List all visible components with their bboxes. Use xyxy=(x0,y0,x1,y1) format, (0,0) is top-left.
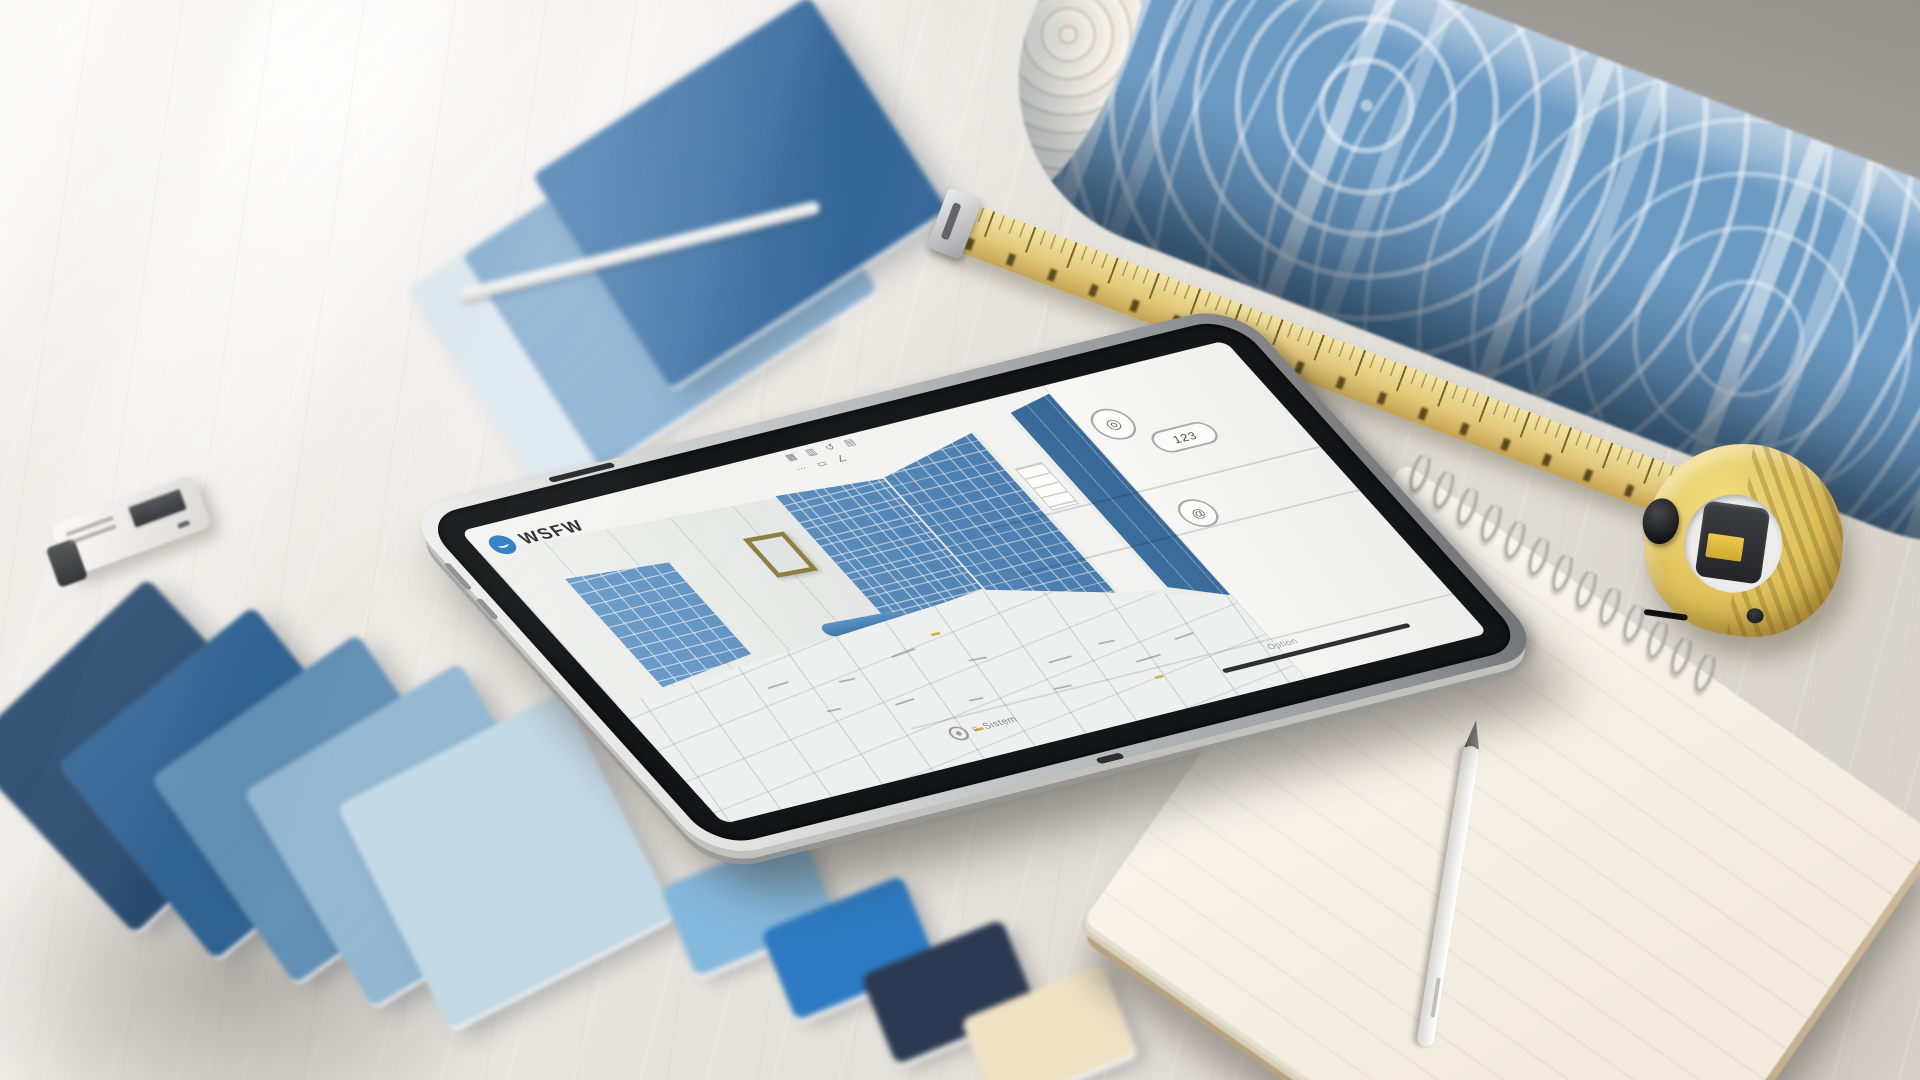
angle-icon[interactable]: ∠ xyxy=(834,454,851,465)
spiral-ring xyxy=(1667,632,1697,677)
orbit-icon: ◎ xyxy=(1100,415,1127,434)
dimensions-pill-label: 123 xyxy=(1169,429,1201,445)
desk-scene: WSFW ▦▥↺▤⋯▭∠ ◎ 123 @ Option ⌗ Sistem xyxy=(0,0,1920,1080)
logo-arc-icon xyxy=(495,541,511,549)
floor-sketch-mark xyxy=(1174,632,1193,639)
spiral-ring xyxy=(1476,499,1506,544)
floor-sketch-mark xyxy=(1048,655,1072,663)
floor-sketch-mark xyxy=(968,657,987,662)
floor-sketch-mark xyxy=(968,697,983,701)
spiral-ring xyxy=(1500,516,1530,561)
spiral-ring xyxy=(1595,582,1625,627)
spiral-ring xyxy=(1548,549,1578,594)
spiral-ring xyxy=(1690,649,1720,694)
floor-sketch-mark xyxy=(891,648,915,658)
floor-sketch-mark xyxy=(839,678,856,683)
floor-sketch-mark xyxy=(895,698,915,705)
spiral-ring xyxy=(1572,566,1602,611)
floor-sketch-mark xyxy=(767,681,789,688)
floor-sketch-mark xyxy=(1135,654,1160,663)
grid-icon: ⌗ xyxy=(969,724,982,734)
floor-sketch-mark xyxy=(1098,640,1115,644)
tape-blade xyxy=(1705,533,1744,562)
columns-icon[interactable]: ▥ xyxy=(803,447,821,459)
gadget-ridge xyxy=(68,524,116,545)
tape-measure-window xyxy=(1695,500,1771,584)
floor-dimension-mark xyxy=(930,632,941,637)
spiral-ring xyxy=(1619,599,1649,644)
at-icon: @ xyxy=(1187,506,1210,521)
spiral-ring xyxy=(1429,466,1459,511)
spiral-ring xyxy=(1453,483,1483,528)
tile-sample-chips xyxy=(655,848,1135,1080)
panel-icon[interactable]: ▤ xyxy=(842,438,860,450)
floor-sketch-mark xyxy=(826,708,841,712)
gadget-slot xyxy=(177,520,190,529)
undo-icon[interactable]: ↺ xyxy=(823,443,840,454)
spiral-ring xyxy=(1524,533,1554,578)
spiral-ring xyxy=(1643,616,1673,661)
ruler-icon[interactable]: ▭ xyxy=(814,459,832,471)
floor-dimension-mark xyxy=(1154,675,1164,679)
